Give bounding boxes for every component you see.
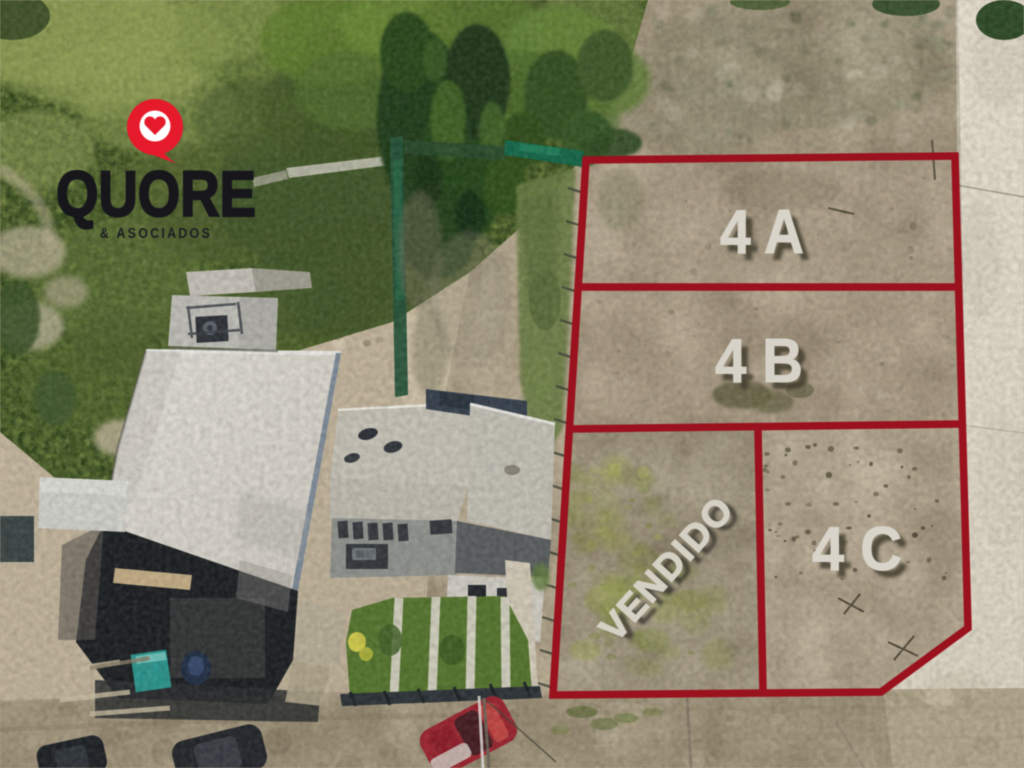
svg-text:4 B: 4 B: [715, 327, 803, 396]
svg-text:4 A: 4 A: [720, 198, 804, 267]
svg-text:QUORE: QUORE: [56, 158, 256, 230]
svg-text:4 C: 4 C: [812, 515, 902, 584]
svg-text:& ASOCIADOS: & ASOCIADOS: [100, 226, 212, 242]
